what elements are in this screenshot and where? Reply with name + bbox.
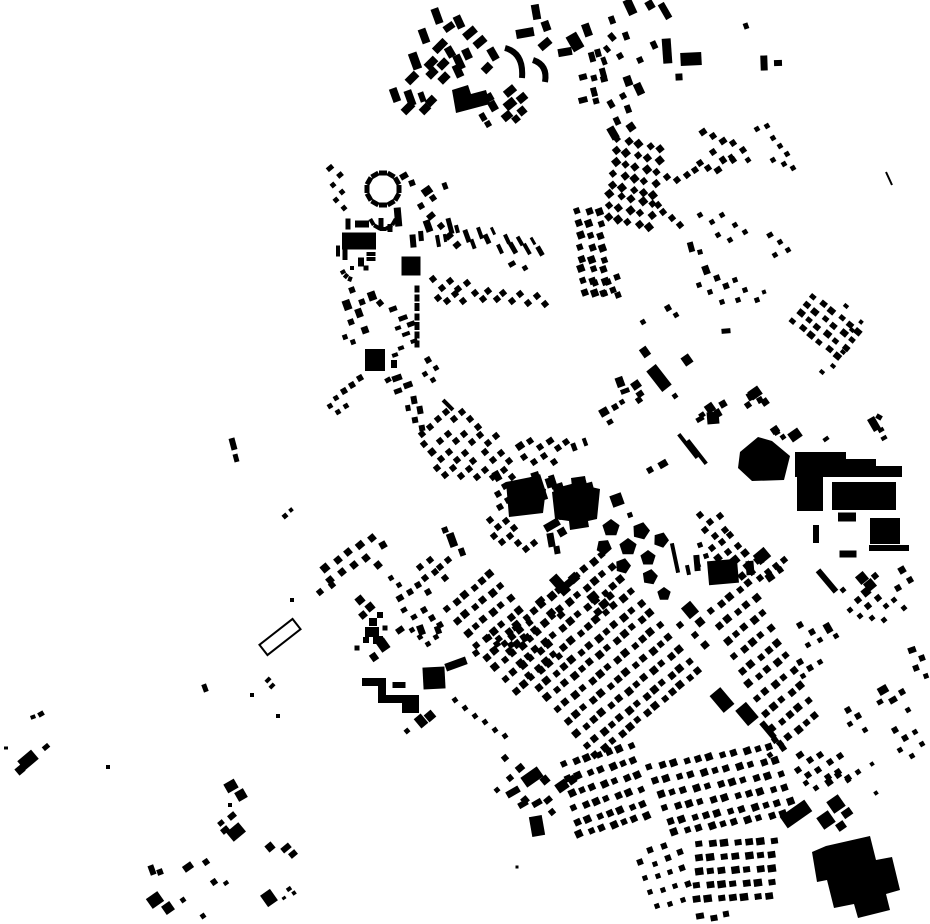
building bbox=[674, 801, 683, 810]
building bbox=[766, 231, 774, 238]
building bbox=[708, 544, 716, 552]
building bbox=[652, 168, 660, 176]
building bbox=[761, 709, 770, 718]
building bbox=[506, 532, 514, 540]
building bbox=[664, 854, 672, 862]
large-blob-building bbox=[738, 437, 790, 481]
building bbox=[454, 225, 460, 234]
building bbox=[800, 673, 807, 680]
building bbox=[391, 352, 398, 358]
building bbox=[508, 297, 516, 305]
building bbox=[584, 641, 593, 650]
building bbox=[603, 644, 611, 652]
building bbox=[617, 182, 627, 192]
building bbox=[647, 889, 653, 895]
building bbox=[780, 556, 788, 564]
building bbox=[629, 814, 638, 823]
building bbox=[570, 709, 580, 719]
building bbox=[752, 774, 761, 783]
building bbox=[658, 2, 673, 20]
building bbox=[531, 4, 541, 20]
building bbox=[492, 727, 499, 734]
building bbox=[478, 614, 487, 623]
building bbox=[416, 624, 426, 636]
building bbox=[200, 913, 207, 920]
building bbox=[443, 297, 451, 305]
building bbox=[493, 786, 500, 793]
building bbox=[613, 655, 622, 664]
building bbox=[347, 318, 355, 326]
building bbox=[882, 602, 889, 609]
building bbox=[661, 695, 669, 703]
building bbox=[350, 266, 354, 270]
building bbox=[496, 503, 504, 511]
huge-southeast-building bbox=[812, 836, 900, 918]
stepped-slab-building bbox=[795, 452, 902, 477]
building bbox=[431, 7, 444, 25]
building bbox=[610, 777, 618, 785]
building bbox=[565, 616, 575, 626]
building bbox=[862, 727, 869, 734]
building bbox=[591, 797, 601, 807]
building bbox=[358, 258, 364, 267]
building bbox=[417, 202, 425, 210]
building bbox=[854, 596, 862, 604]
building bbox=[734, 608, 742, 616]
building bbox=[473, 473, 481, 481]
building bbox=[550, 458, 558, 466]
building bbox=[768, 879, 776, 886]
building bbox=[684, 880, 692, 888]
building bbox=[772, 657, 782, 667]
building bbox=[424, 356, 432, 364]
building bbox=[734, 792, 742, 800]
building bbox=[559, 662, 568, 671]
building bbox=[452, 697, 459, 704]
building bbox=[736, 586, 744, 594]
building bbox=[156, 868, 164, 876]
building bbox=[853, 327, 863, 337]
building bbox=[578, 684, 586, 692]
building bbox=[608, 15, 616, 25]
building bbox=[575, 219, 584, 228]
building bbox=[627, 587, 635, 595]
building bbox=[614, 744, 624, 754]
building bbox=[635, 396, 643, 404]
building bbox=[738, 666, 747, 675]
building bbox=[435, 235, 441, 248]
building bbox=[223, 779, 238, 794]
building bbox=[397, 345, 404, 351]
building bbox=[709, 839, 718, 847]
building bbox=[683, 171, 691, 179]
building bbox=[802, 718, 810, 726]
building bbox=[901, 734, 909, 742]
building bbox=[625, 205, 635, 215]
building bbox=[397, 185, 402, 193]
building bbox=[526, 437, 534, 445]
building bbox=[536, 443, 544, 451]
building bbox=[675, 73, 682, 80]
pentagon-building bbox=[657, 587, 670, 600]
building bbox=[367, 533, 377, 543]
building bbox=[458, 547, 466, 557]
building bbox=[600, 779, 610, 789]
building bbox=[420, 440, 428, 448]
building bbox=[576, 264, 585, 273]
building bbox=[676, 773, 684, 781]
building bbox=[229, 437, 238, 450]
building bbox=[592, 97, 599, 104]
building bbox=[613, 674, 622, 683]
building bbox=[573, 591, 581, 599]
building bbox=[472, 649, 480, 657]
building bbox=[770, 135, 777, 142]
building bbox=[146, 891, 164, 909]
building bbox=[676, 621, 684, 629]
building bbox=[743, 678, 753, 688]
building bbox=[106, 765, 110, 769]
building bbox=[30, 714, 36, 719]
building bbox=[426, 556, 434, 564]
building bbox=[817, 637, 824, 644]
building bbox=[562, 438, 570, 446]
building bbox=[814, 766, 822, 774]
building bbox=[696, 282, 702, 288]
building bbox=[691, 166, 699, 174]
building bbox=[535, 245, 544, 256]
building bbox=[679, 786, 688, 795]
building bbox=[709, 795, 718, 804]
building bbox=[686, 674, 694, 682]
building bbox=[569, 804, 577, 812]
building bbox=[770, 679, 780, 689]
building bbox=[766, 623, 775, 632]
building bbox=[587, 783, 596, 792]
building bbox=[260, 889, 278, 907]
building bbox=[567, 788, 577, 798]
building bbox=[664, 304, 672, 312]
building bbox=[787, 427, 803, 442]
building bbox=[707, 821, 716, 830]
building bbox=[761, 289, 766, 294]
building bbox=[264, 841, 275, 852]
building bbox=[739, 893, 748, 901]
building bbox=[646, 364, 671, 392]
building bbox=[619, 759, 627, 767]
building bbox=[806, 756, 814, 764]
building bbox=[445, 448, 453, 456]
building bbox=[644, 222, 654, 232]
building bbox=[854, 712, 862, 720]
building bbox=[629, 803, 637, 811]
building bbox=[651, 179, 660, 188]
building bbox=[406, 588, 414, 596]
building bbox=[756, 865, 765, 873]
building bbox=[424, 588, 432, 596]
building bbox=[595, 688, 605, 698]
building bbox=[667, 652, 676, 661]
building bbox=[777, 770, 785, 778]
building bbox=[428, 614, 436, 622]
building bbox=[531, 798, 543, 808]
building bbox=[734, 839, 742, 846]
building bbox=[839, 328, 849, 338]
building bbox=[379, 203, 387, 208]
building bbox=[654, 903, 660, 909]
building bbox=[405, 405, 411, 412]
building bbox=[434, 294, 442, 302]
building bbox=[674, 644, 684, 654]
building bbox=[847, 721, 854, 728]
building bbox=[534, 683, 543, 692]
building bbox=[770, 756, 779, 765]
building bbox=[745, 157, 752, 164]
building bbox=[342, 299, 353, 311]
building bbox=[615, 376, 626, 388]
building bbox=[228, 803, 232, 807]
building bbox=[507, 613, 516, 622]
building bbox=[494, 523, 502, 531]
building bbox=[576, 243, 584, 251]
building bbox=[619, 612, 629, 622]
building bbox=[358, 610, 368, 620]
building bbox=[783, 732, 792, 741]
building bbox=[734, 542, 742, 550]
building bbox=[481, 466, 489, 474]
building bbox=[598, 220, 606, 228]
building bbox=[624, 686, 634, 696]
building bbox=[812, 323, 821, 332]
building bbox=[590, 265, 598, 273]
building bbox=[329, 181, 336, 188]
building bbox=[735, 762, 744, 771]
building bbox=[442, 408, 450, 416]
building bbox=[336, 246, 340, 257]
building bbox=[781, 161, 788, 168]
building bbox=[516, 105, 527, 116]
building bbox=[422, 371, 429, 378]
building bbox=[829, 322, 838, 331]
building bbox=[712, 808, 721, 817]
building bbox=[460, 430, 468, 438]
building bbox=[701, 526, 709, 534]
building bbox=[590, 288, 599, 297]
building bbox=[459, 590, 469, 600]
building bbox=[611, 157, 621, 167]
building bbox=[423, 219, 434, 233]
building bbox=[684, 799, 693, 808]
building bbox=[501, 110, 514, 123]
building bbox=[582, 722, 590, 730]
building bbox=[478, 595, 487, 604]
building bbox=[607, 701, 615, 709]
building bbox=[607, 682, 615, 690]
building bbox=[643, 708, 652, 717]
building bbox=[650, 701, 660, 711]
building bbox=[442, 399, 455, 412]
building bbox=[554, 444, 562, 452]
building bbox=[777, 695, 785, 703]
building bbox=[698, 128, 707, 137]
building bbox=[446, 277, 454, 285]
building bbox=[347, 276, 352, 282]
building bbox=[720, 853, 728, 860]
building bbox=[630, 186, 638, 194]
building bbox=[596, 707, 606, 717]
building bbox=[518, 679, 528, 689]
building bbox=[848, 336, 856, 344]
building bbox=[333, 555, 343, 565]
building bbox=[474, 423, 482, 431]
building bbox=[427, 447, 437, 457]
building bbox=[441, 574, 449, 582]
building bbox=[757, 852, 765, 859]
building bbox=[633, 139, 643, 149]
building bbox=[620, 387, 630, 395]
building bbox=[646, 466, 654, 474]
building bbox=[912, 664, 920, 672]
building bbox=[503, 84, 517, 98]
building bbox=[696, 798, 704, 806]
building bbox=[810, 711, 819, 720]
building bbox=[816, 810, 835, 829]
building bbox=[729, 894, 738, 902]
building bbox=[416, 406, 423, 415]
building bbox=[420, 606, 428, 614]
building bbox=[822, 622, 833, 634]
building bbox=[541, 20, 552, 32]
building bbox=[602, 627, 610, 635]
building bbox=[625, 121, 636, 132]
building bbox=[692, 895, 701, 903]
building bbox=[753, 878, 762, 886]
building bbox=[742, 746, 751, 755]
building bbox=[868, 614, 875, 621]
building bbox=[750, 802, 759, 811]
building bbox=[565, 635, 575, 645]
building bbox=[415, 314, 420, 321]
building bbox=[453, 456, 461, 464]
building bbox=[553, 686, 561, 694]
building bbox=[406, 320, 415, 327]
building bbox=[377, 612, 383, 618]
building bbox=[616, 52, 624, 60]
building bbox=[694, 755, 703, 764]
building bbox=[795, 680, 805, 690]
building bbox=[706, 881, 715, 889]
building bbox=[855, 769, 862, 776]
building bbox=[873, 790, 879, 796]
building bbox=[830, 363, 836, 369]
pentagon-building bbox=[602, 519, 619, 535]
building bbox=[490, 662, 500, 672]
building bbox=[623, 774, 632, 783]
building bbox=[627, 512, 633, 518]
map-viewport[interactable] bbox=[0, 0, 930, 924]
building bbox=[707, 607, 715, 615]
building bbox=[760, 758, 769, 767]
building bbox=[745, 838, 754, 846]
building bbox=[415, 322, 420, 330]
building bbox=[614, 713, 623, 722]
building bbox=[677, 814, 686, 823]
building bbox=[530, 237, 537, 245]
building bbox=[227, 811, 237, 821]
building-footprint-map bbox=[0, 0, 930, 924]
building bbox=[288, 507, 294, 513]
building bbox=[609, 620, 618, 629]
building bbox=[661, 774, 670, 783]
building bbox=[799, 324, 808, 333]
building bbox=[180, 897, 187, 904]
building bbox=[749, 615, 759, 625]
building bbox=[719, 299, 725, 305]
building bbox=[462, 25, 478, 40]
building bbox=[388, 575, 395, 582]
building bbox=[540, 452, 548, 460]
building bbox=[793, 724, 803, 734]
building bbox=[716, 512, 724, 520]
building bbox=[789, 666, 798, 675]
building bbox=[388, 305, 397, 312]
building bbox=[729, 880, 737, 887]
building bbox=[627, 606, 635, 614]
building bbox=[578, 786, 586, 794]
building bbox=[620, 667, 630, 677]
building bbox=[724, 548, 732, 556]
building bbox=[707, 559, 739, 586]
building bbox=[409, 234, 416, 247]
building bbox=[395, 625, 405, 635]
building bbox=[722, 764, 731, 773]
building bbox=[718, 137, 727, 146]
building bbox=[403, 727, 410, 734]
building bbox=[805, 642, 812, 649]
building bbox=[579, 703, 587, 711]
building bbox=[667, 671, 676, 680]
building bbox=[482, 653, 491, 662]
building bbox=[680, 52, 702, 66]
building bbox=[831, 337, 839, 345]
building bbox=[415, 295, 420, 302]
building bbox=[718, 538, 726, 546]
building bbox=[363, 637, 369, 643]
building bbox=[742, 229, 749, 236]
building bbox=[856, 612, 863, 619]
building bbox=[704, 752, 713, 761]
building bbox=[640, 177, 648, 185]
building bbox=[546, 532, 555, 547]
building bbox=[286, 886, 292, 892]
building bbox=[656, 621, 664, 629]
building bbox=[402, 331, 411, 337]
building bbox=[676, 221, 684, 229]
building bbox=[514, 539, 522, 547]
building bbox=[709, 219, 716, 226]
building bbox=[835, 820, 847, 832]
building bbox=[758, 609, 766, 617]
building bbox=[589, 557, 599, 567]
building bbox=[713, 166, 722, 175]
building bbox=[656, 640, 664, 648]
building bbox=[770, 786, 778, 794]
building bbox=[490, 227, 496, 236]
building bbox=[772, 638, 782, 648]
building bbox=[804, 696, 812, 704]
building bbox=[731, 852, 740, 860]
building bbox=[437, 455, 445, 463]
